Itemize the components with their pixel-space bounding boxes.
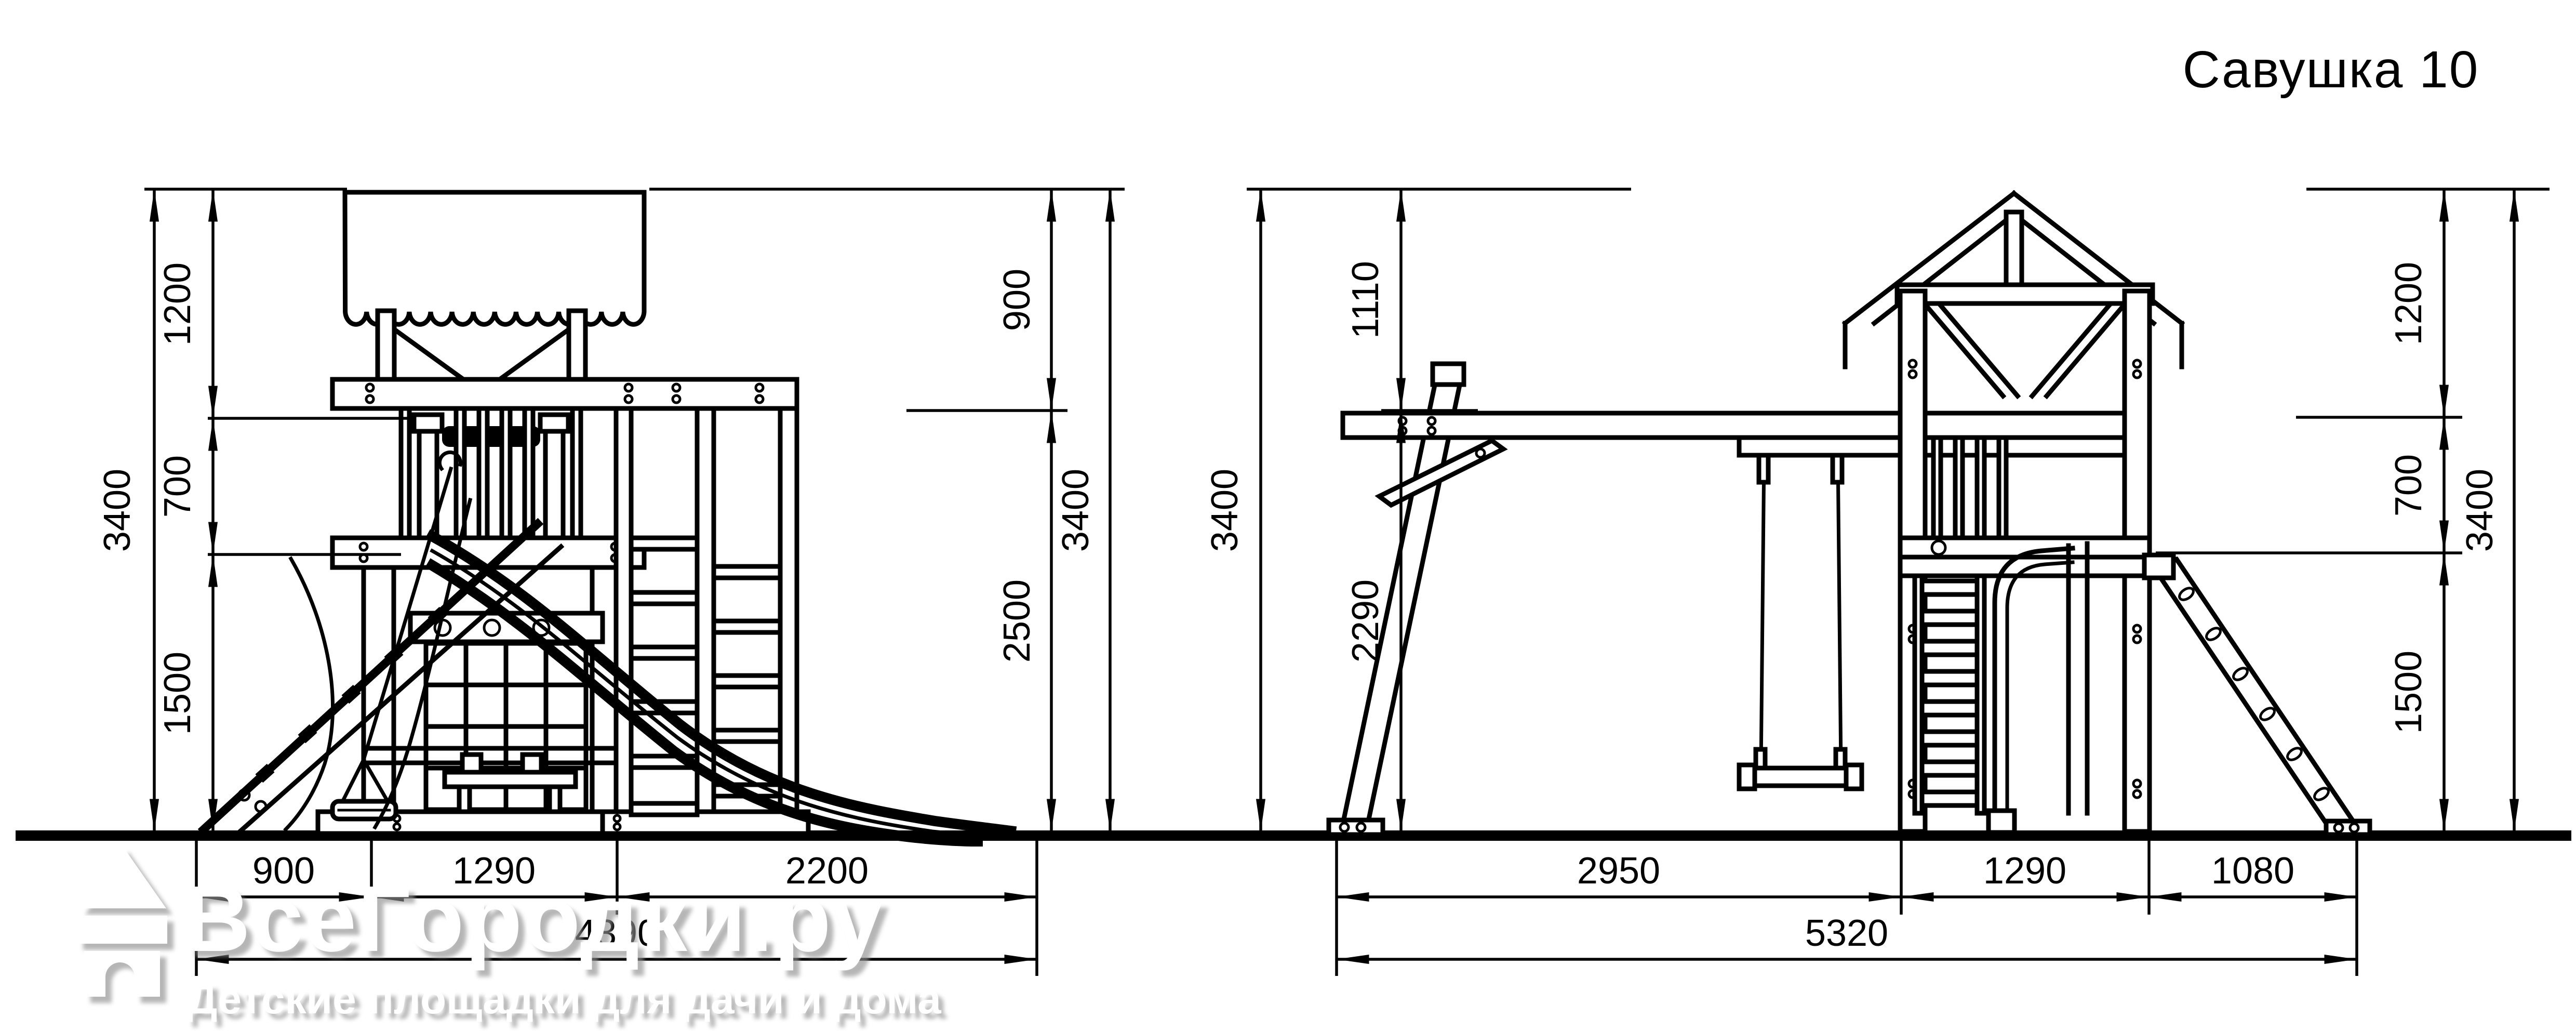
house-icon bbox=[77, 846, 173, 1003]
dim-front-left-1: 1200 bbox=[157, 262, 198, 346]
deck-beam bbox=[332, 538, 644, 567]
dim-side-bottom-total: 5320 bbox=[1805, 913, 1888, 954]
side-dims-bottom: 2950 1290 1080 5320 bbox=[1337, 841, 2357, 976]
dim-side-left-1: 1110 bbox=[1345, 261, 1386, 338]
drawing-canvas: 3400 1200 700 1500 900 2500 3400 900 129… bbox=[0, 0, 2576, 1031]
dim-front-right-outer: 3400 bbox=[1055, 469, 1097, 552]
watermark-tagline: Детские площадки для дачи и дома bbox=[187, 975, 942, 1023]
side-dims-left: 3400 1110 2290 bbox=[1204, 189, 1631, 831]
watermark: ВсеГородки.ру ВсеГородки.ру Детские площ… bbox=[77, 846, 947, 1028]
mid-rail bbox=[364, 748, 622, 763]
dim-side-right-1: 1200 bbox=[2388, 262, 2430, 345]
canopy bbox=[345, 192, 644, 324]
dim-front-right-2: 2500 bbox=[996, 579, 1038, 663]
dim-side-right-outer: 3400 bbox=[2459, 469, 2501, 552]
access-ladder bbox=[2144, 555, 2370, 835]
slide-side bbox=[1988, 544, 2087, 832]
rear-ladder bbox=[616, 408, 797, 815]
side-dims-right: 1200 700 1500 3400 bbox=[2156, 189, 2550, 831]
railing-beam bbox=[332, 379, 797, 408]
dim-front-right-1: 900 bbox=[996, 269, 1038, 331]
dim-side-right-3: 1500 bbox=[2388, 651, 2430, 734]
dim-side-left-2: 2290 bbox=[1345, 579, 1386, 663]
watermark-brand: ВсеГородки.ру bbox=[183, 867, 884, 971]
dim-side-left-outer: 3400 bbox=[1204, 469, 1246, 552]
technical-drawing-page: 3400 1200 700 1500 900 2500 3400 900 129… bbox=[0, 0, 2576, 1031]
dim-side-bottom-2: 1290 bbox=[1983, 850, 2066, 892]
dim-side-bottom-3: 1080 bbox=[2211, 850, 2294, 892]
dim-front-left-outer: 3400 bbox=[97, 469, 138, 552]
swing-beam bbox=[1343, 413, 2149, 505]
dim-side-bottom-1: 2950 bbox=[1577, 850, 1660, 892]
swing bbox=[1739, 455, 1862, 789]
front-view bbox=[204, 192, 1011, 841]
dim-side-right-2: 700 bbox=[2388, 454, 2430, 517]
dim-front-left-3: 1500 bbox=[157, 652, 198, 735]
side-view bbox=[1329, 193, 2370, 835]
page-title: Савушка 10 bbox=[2183, 41, 2479, 99]
dim-front-left-2: 700 bbox=[157, 455, 198, 518]
